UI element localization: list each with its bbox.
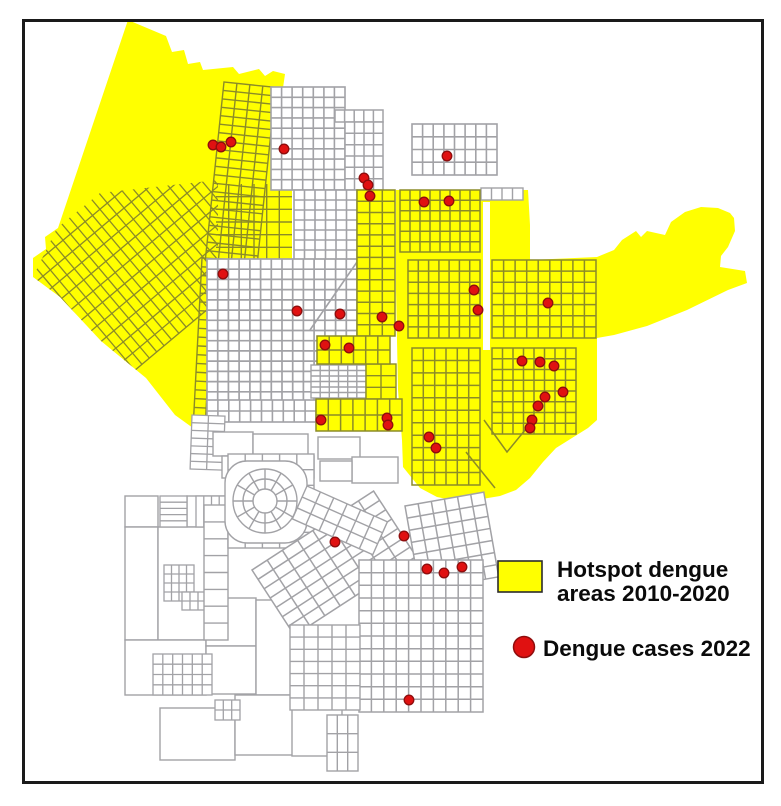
svg-text:Hotspot dengue: Hotspot dengue [557,557,728,582]
svg-text:Dengue cases 2022: Dengue cases 2022 [543,636,751,661]
svg-text:areas 2010-2020: areas 2010-2020 [557,581,730,606]
